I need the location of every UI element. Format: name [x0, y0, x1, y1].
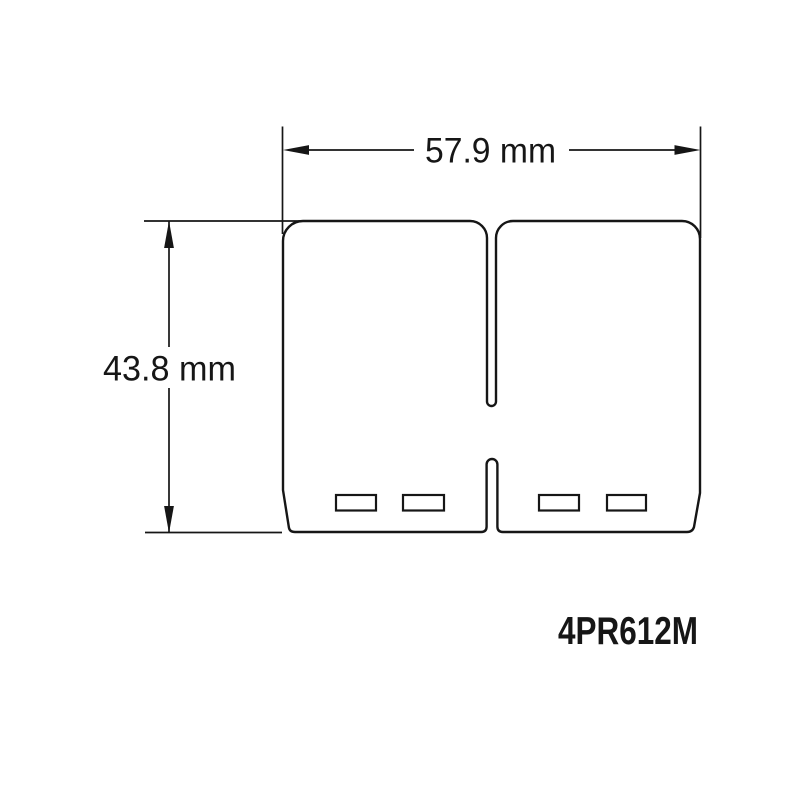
svg-text:4PR612M: 4PR612M [558, 610, 698, 653]
svg-text:57.9 mm: 57.9 mm [425, 132, 556, 171]
svg-text:43.8 mm: 43.8 mm [103, 350, 236, 389]
